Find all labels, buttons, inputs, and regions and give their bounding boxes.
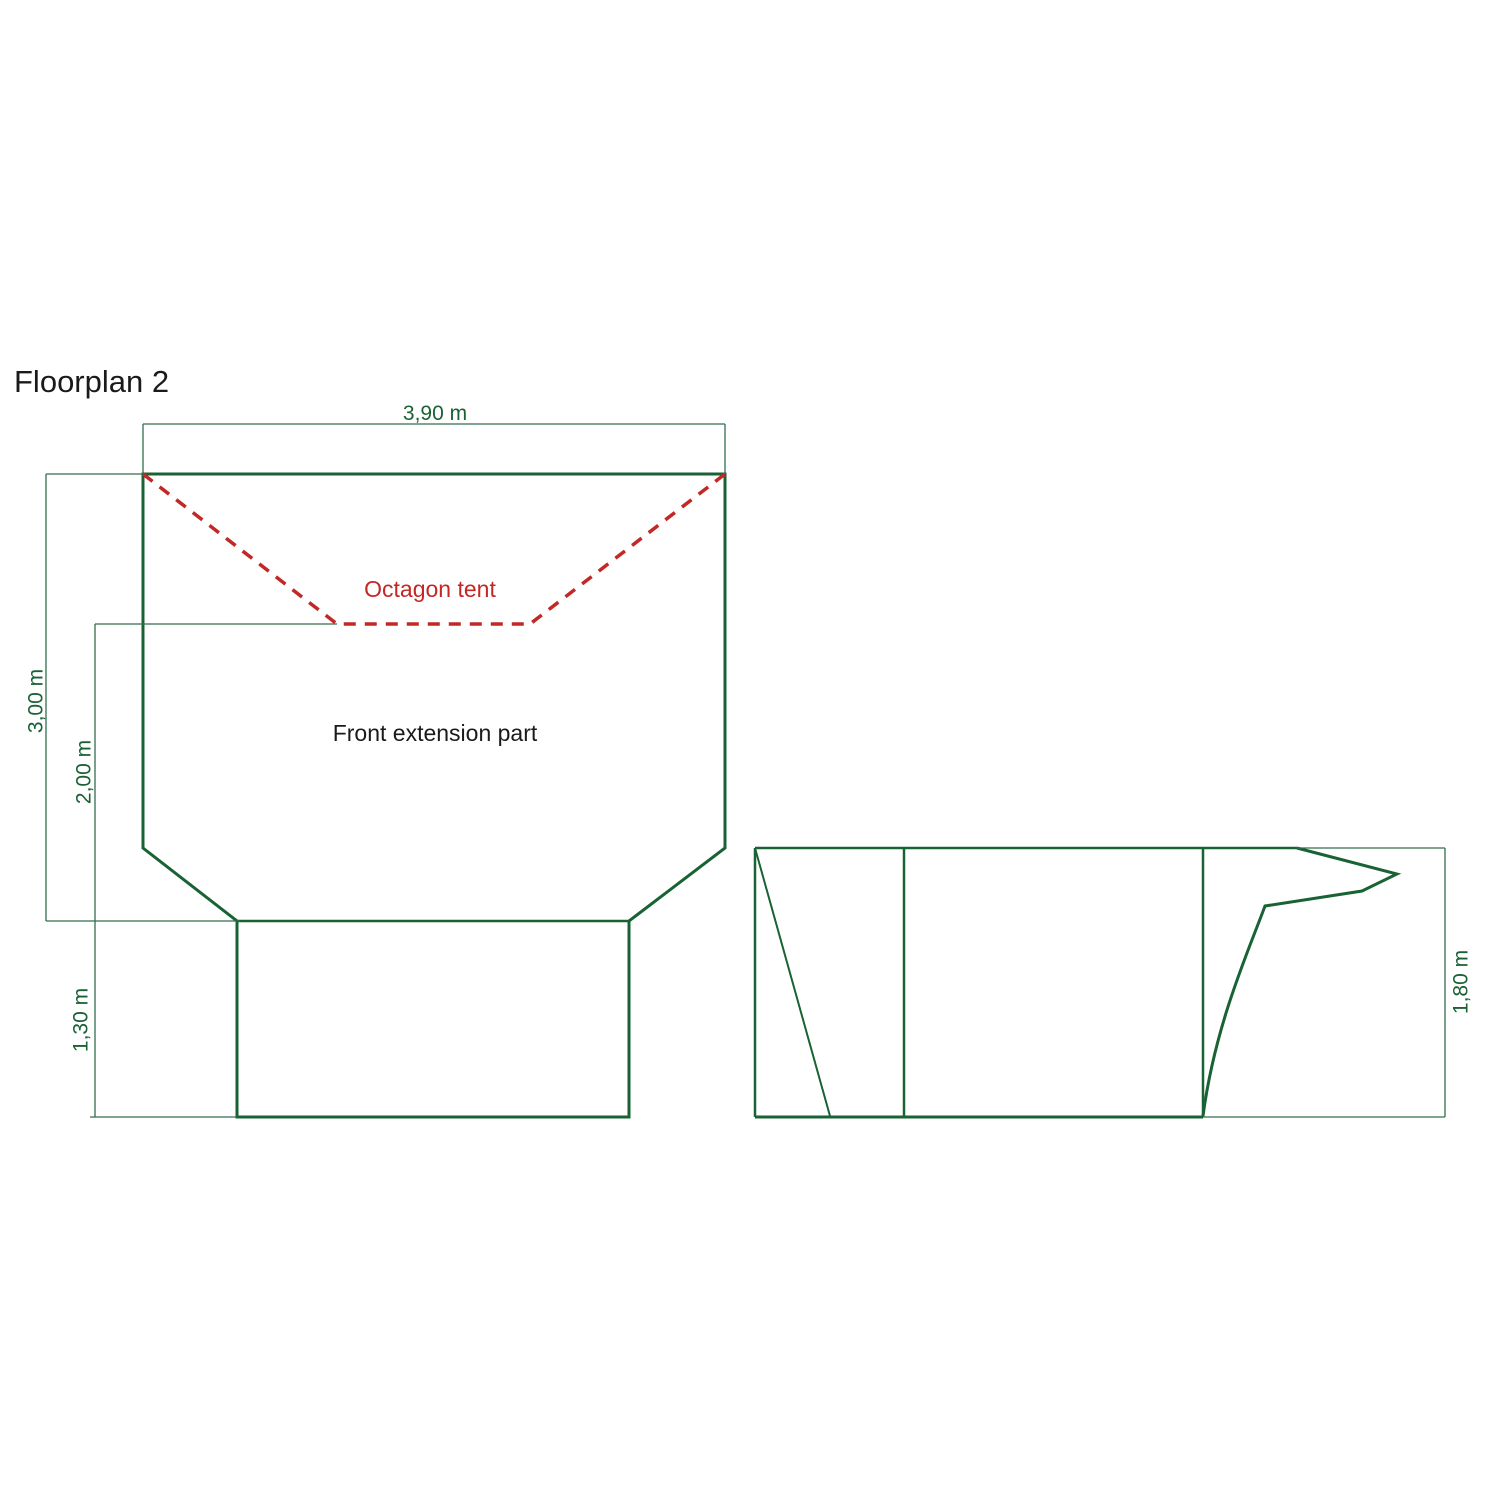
dim-label-total-depth: 3,00 m <box>25 669 48 733</box>
side-view-dimensions: 1,80 m <box>1203 848 1473 1117</box>
floorplan-diagram: Floorplan 2 Octagon tent Front extension… <box>0 0 1492 1492</box>
dim-label-extension-depth: 1,30 m <box>70 988 93 1052</box>
octagon-tent-label: Octagon tent <box>364 576 496 602</box>
floorplan-top-view: Octagon tent Front extension part <box>143 474 725 1117</box>
tent-outline <box>143 474 725 1117</box>
dim-label-height: 1,80 m <box>1450 950 1473 1014</box>
side-front-slope <box>755 848 830 1116</box>
front-extension-label: Front extension part <box>333 720 538 746</box>
dim-label-tent-depth: 2,00 m <box>73 740 96 804</box>
page-title: Floorplan 2 <box>14 364 169 399</box>
side-view <box>755 848 1397 1117</box>
dim-label-width: 3,90 m <box>403 402 467 425</box>
diagram-canvas: Floorplan 2 Octagon tent Front extension… <box>0 0 1492 1492</box>
floorplan-dimensions: 3,90 m 3,00 m 2,00 m 1,30 m <box>25 402 726 1117</box>
side-rear-canopy-profile <box>1203 848 1397 1116</box>
